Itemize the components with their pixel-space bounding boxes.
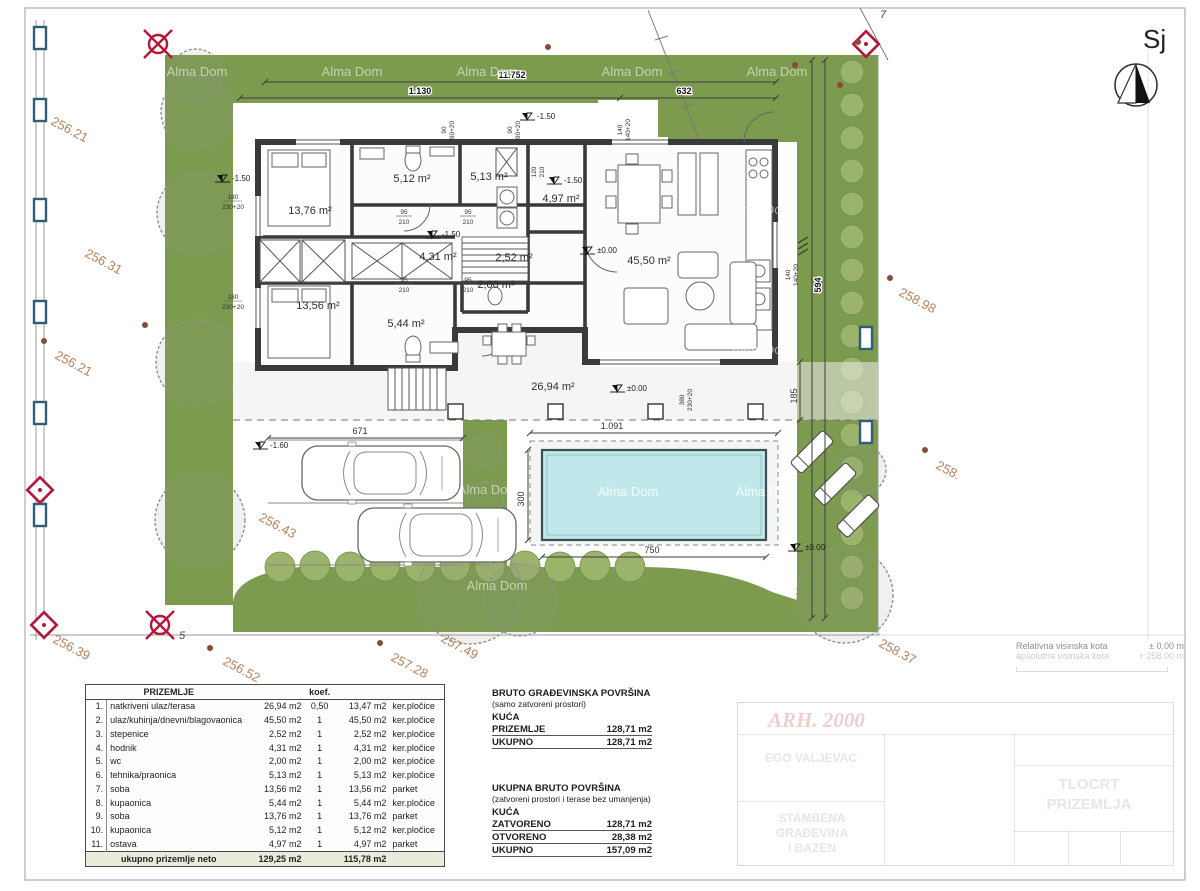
watermark: Alma Dom [322,64,383,79]
room-schedule-table: PRIZEMLJE koef. 1.natkriveni ulaz/terasa… [85,684,445,867]
survey-dot [377,640,383,646]
dim-pool-bottom: 750 [644,545,659,555]
elevation-label: 256.21 [49,113,91,145]
survey-dot [922,447,928,453]
summary-row: UKUPNO 157,09 m2 [492,845,652,857]
schedule-row: 3.stepenice2,52 m212,52 m2ker.pločice [86,727,445,741]
svg-text:210: 210 [399,219,410,226]
svg-text:-1.50: -1.50 [232,174,251,183]
svg-text:180: 180 [228,294,239,301]
watermark: Alma Dom [732,342,793,357]
watermark: Alma Dom [732,202,793,217]
house-group-label: KUĆA [492,712,664,723]
schedule-row: 1.natkriveni ulaz/terasa26,94 m20,5013,4… [86,699,445,713]
marker-number: 5 [179,630,186,642]
total-weighted: 115,78 m2 [335,852,390,867]
elevation-legend: Relativna visinska kota ± 0.00 m apsolut… [1016,641,1184,672]
survey-cross-marker [146,611,174,639]
svg-text:90: 90 [507,126,514,134]
watermark: Alma Dom [747,64,808,79]
dim-terrace-side: 185 [789,388,799,403]
total-gross-subtitle: (zatvoreni prostori i terase bez umanjen… [492,794,664,804]
absolute-elevation-row: apsolutna visinska kota + 258.00 m [1016,651,1184,661]
room-area-label: 5,13 m² [470,171,508,183]
project-name: STAMBENA GRAĐEVINA I BAZEN [742,811,882,856]
elevation-label: 256.39 [51,631,93,663]
svg-text:90+20: 90+20 [515,120,522,139]
relative-elevation-row: Relativna visinska kota ± 0.00 m [1016,641,1184,651]
corner-number: 7 [880,9,887,21]
elevation-label: 258.37 [877,635,919,667]
investor-name: EGO VALJEVAC [746,751,876,765]
schedule-title: PRIZEMLJE [86,685,252,700]
room-area-label: 13,56 m² [296,300,340,312]
room-area-label: 4,31 m² [419,251,457,263]
title-block: ARH. 2000 EGO VALJEVAC STAMBENA GRAĐEVIN… [737,702,1174,866]
svg-text:95: 95 [400,277,408,284]
svg-text:-1.50: -1.50 [537,112,556,121]
elevation-label: 256.43 [257,509,299,541]
svg-text:230+20: 230+20 [222,304,244,311]
schedule-row: 2.ulaz/kuhinja/dnevni/blagovaonica45,50 … [86,714,445,728]
svg-text:230+20: 230+20 [687,389,694,411]
svg-text:±0.00: ±0.00 [805,543,826,552]
watermark: Alma Dom [457,64,518,79]
elevation-label: 256.52 [221,653,263,685]
survey-cross-marker [144,30,172,58]
survey-dot [887,275,893,281]
svg-text:95: 95 [464,277,472,284]
room-area-label: 2,00 m² [477,279,515,291]
dim-parking: 671 [352,426,367,436]
svg-text:180: 180 [228,194,239,201]
dim-right-strip: 594 [813,277,823,292]
dim-top-left: 1.130 [409,86,432,96]
schedule-row: 10.kupaonica5,12 m215,12 m2ker.pločice [86,824,445,838]
dim-top-right: 632 [676,86,691,96]
svg-text:140+20: 140+20 [625,119,632,141]
svg-text:-1.50: -1.50 [442,230,461,239]
room-area-label: 4,97 m² [542,193,580,205]
elevation-label: 256.31 [83,245,125,277]
svg-text:140: 140 [617,124,624,135]
room-area-label: 26,94 m² [531,381,575,393]
svg-text:380: 380 [679,394,686,405]
schedule-row: 5.wc2,00 m212,00 m2ker.pločice [86,755,445,769]
watermark: Alma Dom [467,578,528,593]
room-area-label: 2,52 m² [495,252,533,264]
svg-text:230+20: 230+20 [222,204,244,211]
schedule-header: PRIZEMLJE koef. [86,685,445,700]
car [358,504,516,566]
survey-dot [855,39,861,45]
svg-text:±0.00: ±0.00 [597,246,618,255]
svg-text:140+20: 140+20 [793,264,800,286]
survey-diamond-marker [27,477,52,502]
svg-text:95: 95 [400,209,408,216]
schedule-row: 8.kupaonica5,44 m215,44 m2ker.pločice [86,796,445,810]
svg-text:90: 90 [441,126,448,134]
summary-row: PRIZEMLJE 128,71 m2 [492,724,652,736]
watermark: Alma Dom [458,482,519,497]
schedule-row: 9.soba13,76 m2113,76 m2parket [86,810,445,824]
survey-dot [207,645,213,651]
elevation-label: 258. [934,457,963,482]
elevation-label: 256.21 [53,347,95,379]
svg-text:95: 95 [464,209,472,216]
summary-row: OTVORENO 28,38 m2 [492,832,652,844]
svg-text:120: 120 [531,166,538,177]
svg-text:140: 140 [785,269,792,280]
elevation-label: 257.28 [389,649,431,681]
total-label: ukupno prizemlje neto [86,852,252,867]
area-summary: BRUTO GRAĐEVINSKA POVRŠINA (samo zatvore… [492,688,664,857]
svg-text:90+20: 90+20 [449,120,456,139]
drawing-title: TLOCRT PRIZEMLJA [1014,775,1164,814]
schedule-row: 7.soba13,56 m2113,56 m2parket [86,782,445,796]
survey-diamond-marker [31,612,56,637]
watermark: Alma Dom [602,64,663,79]
survey-dot [837,82,843,88]
survey-dot [41,338,47,344]
house [253,112,780,368]
svg-text:210: 210 [399,287,410,294]
schedule-total-row: ukupno prizemlje neto 129,25 m2 115,78 m… [86,852,445,867]
summary-row: ZATVORENO 128,71 m2 [492,819,652,831]
north-arrow-icon [1115,64,1157,106]
svg-text:210: 210 [539,166,546,177]
room-area-label: 5,44 m² [387,318,425,330]
survey-dot [142,322,148,328]
survey-dot [545,44,551,50]
svg-text:-1.50: -1.50 [564,176,583,185]
floor-plan-sheet: 11.752 1.130 632 594 1.091 750 300 671 1… [0,0,1200,891]
svg-text:210: 210 [463,287,474,294]
room-area-label: 13,76 m² [288,205,332,217]
exterior-stairs [388,368,446,410]
svg-text:-1.60: -1.60 [270,441,289,450]
car [302,442,460,504]
summary-row: UKUPNO 128,71 m2 [492,737,652,749]
survey-dot [792,62,798,68]
room-area-label: 45,50 m² [627,255,671,267]
firm-logo-text: ARH. 2000 [768,708,865,733]
schedule-row: 4.hodnik4,31 m214,31 m2ker.pločice [86,741,445,755]
dim-pool-top: 1.091 [601,421,624,431]
gross-area-title: BRUTO GRAĐEVINSKA POVRŠINA [492,688,664,699]
svg-text:210: 210 [463,219,474,226]
north-label: Sj [1143,24,1166,54]
schedule-row: 11.ostava4,97 m214,97 m2parket [86,837,445,851]
elevation-label: 258.98 [897,284,939,316]
koef-header: koef. [305,685,335,700]
total-gross-title: UKUPNA BRUTO POVRŠINA [492,783,664,794]
watermark: Alma Dom [736,484,797,499]
watermark: Alma Dom [167,64,228,79]
scale-bar [1016,667,1168,672]
schedule-row: 6.tehnika/praonica5,13 m215,13 m2ker.plo… [86,769,445,783]
watermark: Alma Dom [598,484,659,499]
total-net: 129,25 m2 [251,852,304,867]
svg-text:±0.00: ±0.00 [627,384,648,393]
room-area-label: 5,12 m² [393,173,431,185]
house-group-label: KUĆA [492,807,664,818]
gross-area-subtitle: (samo zatvoreni prostori) [492,699,664,709]
